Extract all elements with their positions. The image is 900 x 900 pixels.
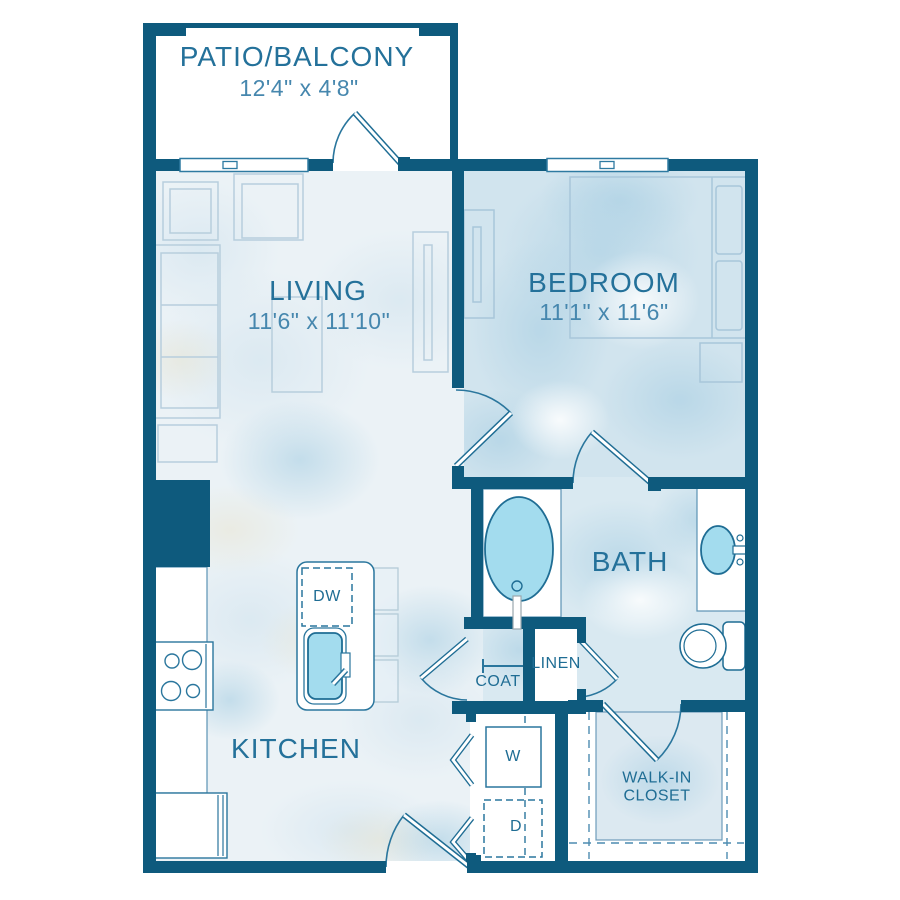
walk-in-closet-label: WALK-IN CLOSET [602, 770, 712, 807]
floor-plan-drawing [0, 0, 900, 900]
patio-left-wall [143, 23, 156, 159]
refrigerator [155, 793, 227, 858]
tub-faucet [513, 596, 521, 629]
burner [162, 682, 181, 701]
washer-label: W [505, 748, 521, 766]
dryer-label: D [510, 818, 522, 836]
bedroom-dims-label: 11'1" x 11'6" [539, 299, 668, 325]
bath-room-label: BATH [592, 546, 669, 578]
floor-plan: PATIO/BALCONY 12'4" x 4'8" LIVING 11'6" … [0, 0, 900, 900]
bar-stool [373, 614, 398, 656]
bar-stool [373, 660, 398, 702]
bedroom-room-label: BEDROOM [528, 267, 680, 299]
walk-in-closet-label-line1: WALK-IN [602, 770, 712, 788]
bar-stool [373, 568, 398, 610]
burner [165, 654, 179, 668]
linen-closet-label: LINEN [531, 655, 581, 673]
kitchen-room-label: KITCHEN [231, 733, 361, 765]
tub-drain [512, 581, 522, 591]
dishwasher-label: DW [313, 588, 341, 606]
stove [155, 642, 213, 710]
patio-dims-label: 12'4" x 4'8" [239, 75, 358, 101]
patio-right-wall [450, 23, 458, 159]
living-dims-label: 11'6" x 11'10" [248, 308, 391, 334]
kitchen-wall-block [143, 480, 210, 567]
living-window [180, 159, 308, 172]
right-wall [745, 159, 758, 873]
coat-closet-label: COAT [475, 673, 520, 691]
burner [187, 685, 200, 698]
walk-in-closet-label-line2: CLOSET [602, 788, 712, 806]
burner [183, 651, 202, 670]
bathroom-sink [701, 526, 735, 574]
patio-room-label: PATIO/BALCONY [180, 41, 414, 73]
living-room-label: LIVING [269, 275, 367, 307]
kitchen-sink [308, 633, 342, 699]
bedroom-window [547, 159, 668, 172]
sink-faucet [733, 546, 746, 554]
